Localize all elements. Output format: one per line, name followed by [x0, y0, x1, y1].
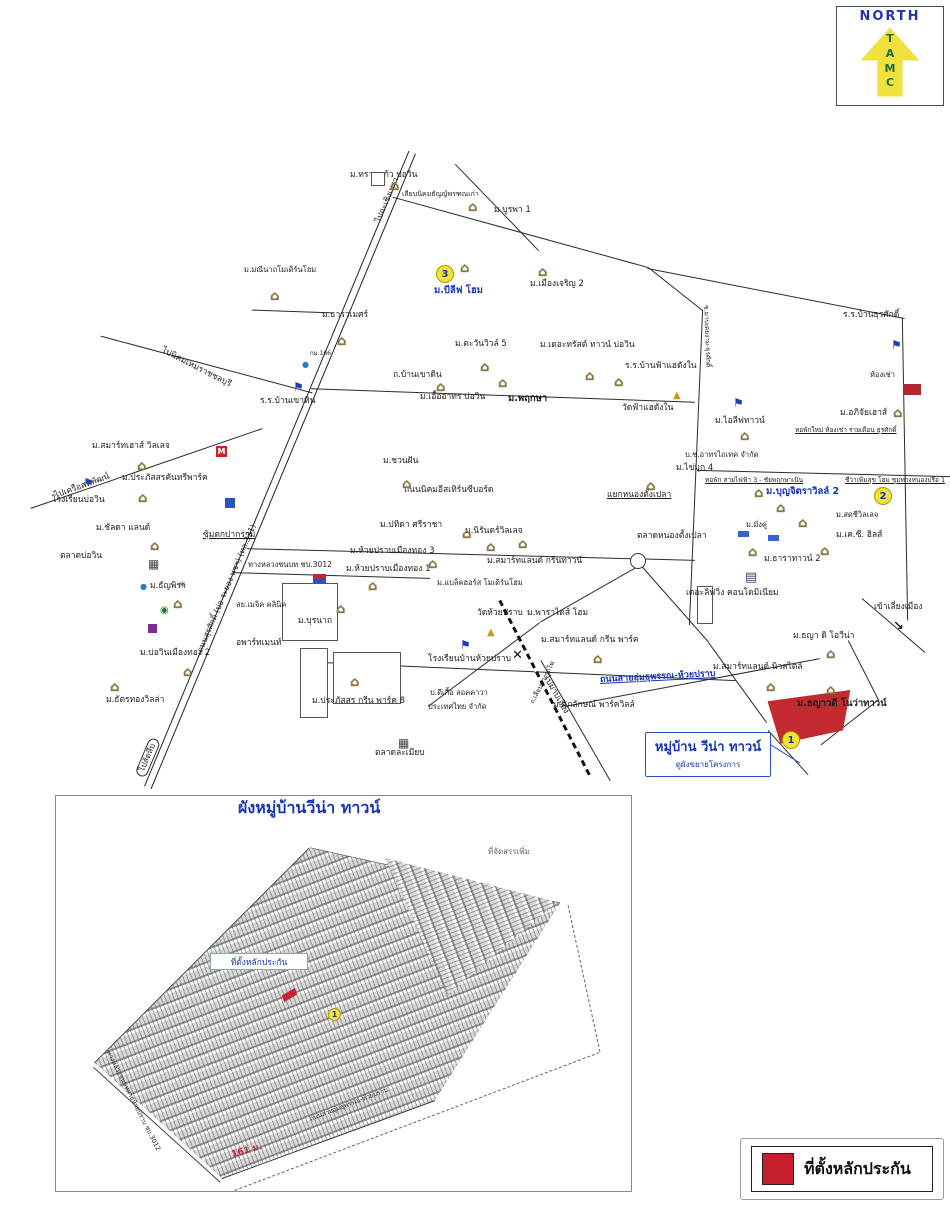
map-label: ม.มณีนาถโมเดิร์นโฮม [244, 266, 316, 274]
plan-collateral-label-box: ที่ตั้งหลักประกัน [210, 953, 308, 970]
map-label: ม.สมาร์ทแลนด์ กรีน พาร์ค [541, 636, 639, 645]
house-icon: ⌂ [820, 545, 829, 558]
bank-icon: ◉ [160, 606, 169, 616]
map-label: ตลาดบ่อวิน [60, 552, 102, 561]
map-label: ม.บุญจิตราวิลล์ 2 [766, 487, 839, 497]
redbldg-icon [903, 384, 921, 395]
compass-letter: T [886, 32, 894, 46]
map-label: หอพัก สายไฟฟ้า 3 - ชัยพฤกษาเนิน [705, 477, 803, 484]
purple-icon [148, 624, 157, 633]
map-label: ม.ตะวันวิวล์ 5 [455, 340, 507, 349]
map-label: ม.บุรนาถ [298, 617, 332, 626]
school-icon: ⚑ [293, 381, 304, 393]
rail-icon: ✕ [512, 649, 523, 662]
map-label: ม.มั่งคู่ [746, 521, 767, 529]
map-label: แยกหนองตั้งเปลา [607, 491, 671, 500]
house-icon: ⌂ [754, 487, 763, 500]
drop-icon: ● [140, 583, 147, 591]
parcel-outline [282, 583, 338, 641]
legend-label: ที่ตั้งหลักประกัน [804, 1157, 911, 1182]
school-icon: ⚑ [83, 477, 94, 489]
road-line [902, 319, 908, 621]
school-icon: ⚑ [460, 639, 471, 651]
map-label: หอพักใหม่ ห้องเช่า รายเดือน ธุรศักดิ์ [795, 427, 896, 434]
legend-box: ที่ตั้งหลักประกัน [740, 1138, 944, 1200]
house-icon: ⌂ [436, 381, 445, 394]
map-label: ม.อภิจัยเฮาส์ [840, 409, 887, 418]
house-icon: ⌂ [740, 430, 749, 443]
callout-subtitle: ดูผังขยายโครงการ [646, 758, 770, 771]
map-label: เข้าเลี่ยงเมือง [874, 603, 923, 612]
road-line [708, 642, 767, 723]
house-icon: ⌂ [270, 290, 279, 303]
map-label: ม.แบล็คฮอร์ส โมเดิร์นโฮม [437, 579, 523, 587]
numbered-marker-2: 2 [874, 487, 892, 505]
temple-icon: ▲ [673, 391, 681, 401]
house-icon: ⌂ [390, 180, 399, 193]
map-label: บ.ดีเกื้อ ลอคคาวา [430, 689, 488, 697]
compass-letter: A [886, 47, 895, 61]
project-callout-box: หมู่บ้าน วีน่า ทาวน์ ดูผังขยายโครงการ [645, 732, 771, 777]
temple-icon: ▲ [487, 628, 495, 638]
legend-inner: ที่ตั้งหลักประกัน [751, 1146, 933, 1192]
numbered-marker-1: 1 [782, 731, 800, 749]
house-icon: ⌂ [480, 361, 489, 374]
map-label: ซ.มาบเตยงาม-ธุรศักดิ์ [703, 305, 712, 367]
numbered-marker-1: 1 [328, 1008, 341, 1021]
map-label: โรงเรียนบ้านห้วยปราบ [428, 655, 511, 664]
map-label: ม.ชวนฝัน [383, 457, 418, 466]
road-line [847, 640, 878, 700]
house-icon: ⌂ [468, 201, 477, 214]
map-label: ม.พฤกษา [508, 394, 547, 404]
north-compass: NORTH T A M C [836, 6, 944, 106]
house-icon: ⌂ [826, 648, 835, 661]
sq-icon [371, 172, 385, 186]
arrow-icon: ↘ [893, 620, 904, 633]
house-icon: ⌂ [350, 676, 359, 689]
road-line [247, 548, 695, 561]
road-line [252, 310, 332, 314]
map-label: ถนนนิคมอีสเทิร์นซีบอร์ด [404, 486, 493, 495]
house-icon: ⌂ [368, 580, 377, 593]
railway-line [498, 600, 591, 777]
house-icon: ⌂ [173, 598, 182, 611]
market-icon: ▦ [398, 737, 409, 749]
spark-icon: ✳ [178, 581, 186, 591]
map-label: ม.สดชีวิลเลจ [836, 511, 878, 519]
house-icon: ⌂ [460, 262, 469, 275]
house-icon: ⌂ [766, 681, 775, 694]
map-label: ถนนสายอุ่มธุพรรณ-ห้วยปราบ [600, 670, 716, 685]
house-icon: ⌂ [593, 653, 602, 666]
house-icon: ⌂ [776, 502, 785, 515]
house-icon: ⌂ [748, 546, 757, 559]
map-label: ร.ร.บ้านฟ้าแฮดังใน [625, 362, 697, 371]
map-label: ม.ไอลีฟทาวน์ [715, 417, 765, 426]
map-label: ร.ร.บ้านเขาหิน [260, 397, 315, 406]
sign-icon [313, 574, 326, 583]
map-label: ผังหมู่บ้านวีน่า ทาวน์ [238, 800, 380, 816]
map-label: ประเทศไทย จำกัด [428, 703, 487, 711]
map-label: ทางหลวงชนบท ชบ.3012 [248, 561, 332, 569]
map-label: ถนนสุรศักดิ์ (บ่อ-ระยอง ทชฯ) (ทล.331) [196, 523, 257, 653]
map-label: ที่จัดสรรเพิ่ม [488, 848, 530, 856]
map-label: ถ.บ้านเขาดิน [393, 371, 442, 380]
map-label: ม.สมาร์ทแลนด์ กรีนทาวน์ [487, 557, 582, 566]
map-label: ม.บูรพา 1 [494, 206, 531, 215]
map-label: ม.ธญา ดิ โอวีน่า [793, 632, 854, 641]
map-label: ม.ธัตรทองวิลล่า [106, 696, 164, 705]
map-label: ม.บีลีฟ โฮม [434, 286, 483, 296]
house-icon: ⌂ [336, 603, 345, 616]
house-icon: ⌂ [428, 558, 437, 571]
truck-icon [738, 531, 749, 537]
house-icon: ⌂ [402, 478, 411, 491]
callout-title: หมู่บ้าน วีน่า ทาวน์ [646, 736, 770, 757]
house-icon: ⌂ [826, 684, 835, 697]
house-icon: ⌂ [337, 335, 346, 348]
compass-north-label: NORTH [837, 9, 943, 24]
map-label: บ.ช.อาทรไถเทค จำกัด [685, 451, 759, 459]
scanned-location-map: หมู่บ้าน วีน่า ทาวน์ ดูผังขยายโครงการ ที… [0, 0, 950, 1205]
road-line [100, 336, 312, 394]
map-label: อพาร์ทเมนท์ [236, 639, 282, 648]
map-label: ชีวาเพิ่มสุข โฮม ชุมทางหนองปรือ 1 [845, 477, 945, 484]
house-icon: ⌂ [585, 370, 594, 383]
house-icon: ⌂ [498, 377, 507, 390]
compass-letter: C [886, 76, 894, 90]
market-icon: ▦ [148, 558, 159, 570]
plan-collateral-label: ที่ตั้งหลักประกัน [231, 955, 288, 969]
map-label: ม.นิรันดร์วิลเลจ [465, 527, 523, 536]
map-label: ม.ประภัสสร กรีน พาร์ค 8 [312, 697, 405, 706]
map-label: เดอะลิฟวิ่ง คอนโดมิเนียม [686, 589, 779, 598]
map-label: ม.ห้วยปราบเมืองทอง 1 [346, 565, 431, 574]
map-label: ม.สมาร์ทแลนด์ นิวสไตล์ [713, 663, 803, 672]
map-label: ตลาดละเมียบ [375, 749, 425, 758]
drop-icon: ● [302, 361, 309, 369]
house-icon: ⌂ [183, 666, 192, 679]
map-label: กม.166 [310, 351, 331, 357]
map-label: วัดฟ้าแฮดังใน [622, 404, 673, 413]
map-label: ม.ประภัสสรคันทรีพาร์ค [122, 474, 208, 483]
map-label: ม.ชัลดา แลนด์ [96, 524, 150, 533]
house-icon: ⌂ [137, 460, 146, 473]
map-label: ม.ธญาวดี โนว่าทาวน์ [797, 699, 887, 709]
parcel-outline [300, 648, 328, 718]
legend-red-square-icon [762, 1153, 794, 1185]
map-label: ม.ธาราเมศร์ [322, 311, 368, 320]
map-label: ตลาดหนองตั้งเปลา [637, 532, 707, 541]
house-icon: ⌂ [150, 540, 159, 553]
mcd-icon: M [216, 446, 227, 457]
map-label: ม.เดอะทรัสต์ ทาวน์ บ่อวิน [540, 341, 635, 350]
school-icon: ⚑ [891, 339, 902, 351]
map-label: สย.เมจิค คลินิค [236, 601, 286, 609]
map-label: ม.ปทิดา ศรีราชา [380, 521, 442, 530]
compass-letter: M [885, 62, 896, 76]
junction-circle [630, 553, 646, 569]
map-label: ม.เค.ซี. ฮิลส์ [836, 531, 882, 540]
map-label: ม.พาราไดส์ โฮม [527, 609, 588, 618]
numbered-marker-3: 3 [436, 265, 454, 283]
house-icon: ⌂ [110, 681, 119, 694]
map-label: เลียบนิคมธัญญ์พรฑณเก่า [402, 191, 479, 198]
map-label: วัดห้วยปราบ [477, 609, 523, 618]
house-icon: ⌂ [538, 266, 547, 279]
house-icon: ⌂ [518, 538, 527, 551]
map-label: ม.สมาร์ทเฮาส์ วิลเลจ [92, 442, 170, 451]
house-icon: ⌂ [462, 528, 471, 541]
compass-arrow: T A M C [837, 24, 943, 100]
map-label: ม.ธาราทาวน์ 2 [764, 555, 821, 564]
blue-icon [225, 498, 235, 508]
house-icon: ⌂ [486, 541, 495, 554]
site-plan-frame [55, 795, 632, 1192]
map-label: ม.ห้วยปราบเมืองทอง 3 [350, 547, 435, 556]
truck-icon [768, 535, 779, 541]
school-icon: ⚑ [733, 397, 744, 409]
house-icon: ⌂ [138, 492, 147, 505]
building-icon: ▤ [745, 571, 757, 584]
map-label: ร.ร.บ้านธุรศักดิ์ [843, 311, 899, 320]
compass-letters: T A M C [855, 32, 925, 90]
map-label: ม.ไข่มุก 4 [676, 464, 713, 473]
map-label: ม.เมืองเจริญ 2 [530, 280, 584, 289]
map-label: ห้องเช่า [870, 371, 895, 379]
house-icon: ⌂ [798, 517, 807, 530]
house-icon: ⌂ [893, 407, 902, 420]
map-label: ม.เอื้ออาทร บ่อวิน [420, 393, 485, 402]
house-icon: ⌂ [646, 480, 655, 493]
house-icon: ⌂ [614, 376, 623, 389]
